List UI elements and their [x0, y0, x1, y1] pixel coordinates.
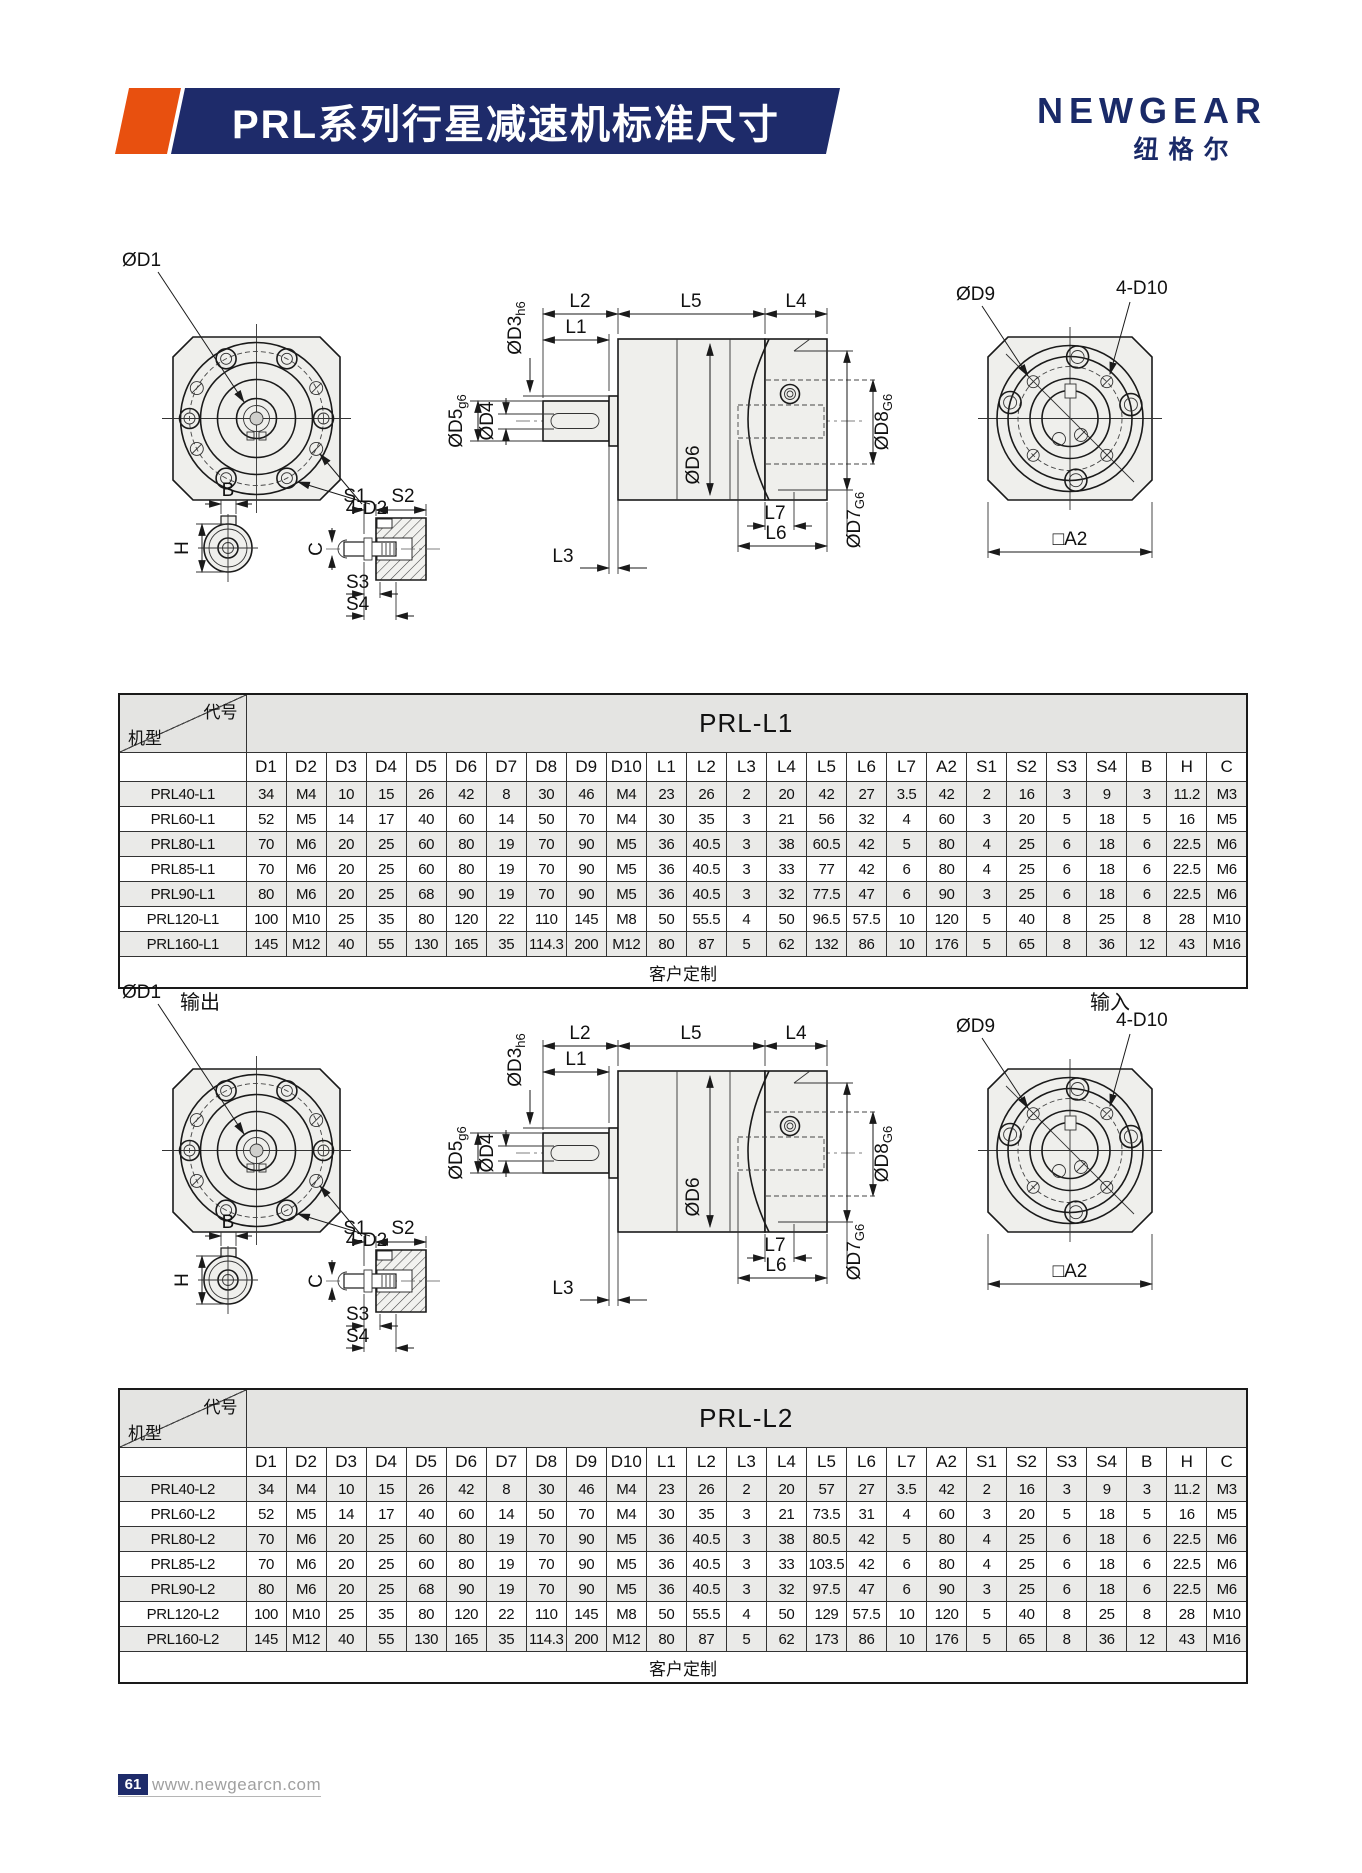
value-cell: 50 — [526, 1502, 566, 1527]
value-cell: 60 — [406, 1527, 446, 1552]
label-od6: ØD6 — [683, 445, 704, 484]
value-cell: 23 — [646, 782, 686, 807]
value-cell: 20 — [326, 832, 366, 857]
value-cell: 68 — [406, 882, 446, 907]
value-cell: 10 — [326, 1477, 366, 1502]
label-a2: □A2 — [1053, 1261, 1088, 1282]
output-flange-view: ØD1 4-D2 — [122, 250, 387, 519]
value-cell: 3 — [726, 1552, 766, 1577]
value-cell: 5 — [967, 932, 1007, 957]
value-cell: 6 — [1047, 1577, 1087, 1602]
value-cell: M6 — [286, 1577, 326, 1602]
value-cell: 25 — [366, 857, 406, 882]
value-cell: 60 — [446, 807, 486, 832]
value-cell: M5 — [606, 832, 646, 857]
value-cell: 6 — [1047, 1527, 1087, 1552]
value-cell: 40 — [406, 807, 446, 832]
value-cell: 46 — [566, 782, 606, 807]
value-cell: 14 — [326, 807, 366, 832]
value-cell: M6 — [1207, 1552, 1247, 1577]
value-cell: 28 — [1167, 907, 1207, 932]
value-cell: 3 — [726, 1527, 766, 1552]
value-cell: M6 — [286, 882, 326, 907]
value-cell: 5 — [887, 832, 927, 857]
label-b: B — [222, 1212, 235, 1233]
value-cell: 5 — [967, 907, 1007, 932]
value-cell: 3 — [1047, 1477, 1087, 1502]
value-cell: 35 — [686, 1502, 726, 1527]
page-title: PRL系列行星减速机标准尺寸 — [232, 92, 780, 150]
value-cell: 3 — [726, 857, 766, 882]
value-cell: 70 — [526, 1577, 566, 1602]
value-cell: 80 — [446, 832, 486, 857]
value-cell: 8 — [1047, 907, 1087, 932]
value-cell: 12 — [1127, 932, 1167, 957]
value-cell: 2 — [967, 782, 1007, 807]
value-cell: 16 — [1007, 782, 1047, 807]
label-od4: ØD4 — [477, 401, 498, 441]
value-cell: 25 — [1087, 1602, 1127, 1627]
series-title: PRL-L2 — [246, 1389, 1247, 1448]
table-corner-cell: 代号机型 — [119, 694, 246, 753]
model-name: PRL90-L2 — [119, 1577, 246, 1602]
value-cell: M6 — [286, 832, 326, 857]
column-header: L7 — [887, 753, 927, 782]
value-cell: M3 — [1207, 782, 1247, 807]
drawing-set-2: 输出 输入 — [118, 960, 1250, 1380]
value-cell: 6 — [1127, 1577, 1167, 1602]
value-cell: 80 — [446, 1552, 486, 1577]
value-cell: 25 — [1007, 832, 1047, 857]
value-cell: 40.5 — [686, 832, 726, 857]
value-cell: 60 — [406, 1552, 446, 1577]
value-cell: 40.5 — [686, 1527, 726, 1552]
value-cell: M12 — [606, 1627, 646, 1652]
value-cell: 17 — [366, 807, 406, 832]
value-cell: 22 — [486, 907, 526, 932]
value-cell: 43 — [1167, 1627, 1207, 1652]
value-cell: 120 — [927, 907, 967, 932]
column-header: S1 — [967, 1448, 1007, 1477]
value-cell: 3 — [726, 1577, 766, 1602]
label-b: B — [222, 480, 235, 501]
value-cell: 4 — [967, 832, 1007, 857]
value-cell: 90 — [566, 832, 606, 857]
table-row: PRL120-L2100M1025358012022110145M85055.5… — [119, 1602, 1247, 1627]
value-cell: 97.5 — [806, 1577, 846, 1602]
value-cell: M10 — [286, 907, 326, 932]
value-cell: 145 — [566, 1602, 606, 1627]
website-link[interactable]: www.newgearcn.com — [152, 1775, 321, 1795]
value-cell: 80 — [446, 1527, 486, 1552]
value-cell: 3 — [726, 832, 766, 857]
value-cell: 18 — [1087, 1502, 1127, 1527]
column-header: L2 — [686, 1448, 726, 1477]
model-name: PRL160-L2 — [119, 1627, 246, 1652]
value-cell: 6 — [1127, 1552, 1167, 1577]
column-header: L3 — [726, 1448, 766, 1477]
table-row: PRL85-L270M620256080197090M53640.5333103… — [119, 1552, 1247, 1577]
value-cell: 100 — [246, 907, 286, 932]
value-cell: 5 — [887, 1527, 927, 1552]
value-cell: 47 — [846, 882, 886, 907]
value-cell: M6 — [1207, 882, 1247, 907]
page-footer: 61 www.newgearcn.com — [118, 1774, 321, 1797]
value-cell: 80 — [927, 857, 967, 882]
value-cell: 40 — [326, 932, 366, 957]
title-banner: PRL系列行星减速机标准尺寸 — [171, 88, 840, 154]
value-cell: 55 — [366, 1627, 406, 1652]
value-cell: 35 — [686, 807, 726, 832]
value-cell: 30 — [526, 782, 566, 807]
value-cell: 3 — [967, 1502, 1007, 1527]
value-cell: 36 — [646, 1527, 686, 1552]
value-cell: 6 — [1127, 832, 1167, 857]
value-cell: 62 — [766, 1627, 806, 1652]
value-cell: 50 — [646, 907, 686, 932]
value-cell: 60 — [927, 807, 967, 832]
value-cell: 8 — [1047, 1602, 1087, 1627]
column-header: S3 — [1047, 753, 1087, 782]
value-cell: 70 — [246, 857, 286, 882]
value-cell: 80 — [927, 1552, 967, 1577]
label-l4: L4 — [785, 1023, 807, 1044]
value-cell: 18 — [1087, 1527, 1127, 1552]
label-c: C — [306, 542, 327, 556]
value-cell: 36 — [1087, 932, 1127, 957]
value-cell: 4 — [887, 807, 927, 832]
value-cell: 65 — [1007, 932, 1047, 957]
dimension-table-prl-l1: 代号机型PRL-L1D1D2D3D4D5D6D7D8D9D10L1L2L3L4L… — [118, 693, 1248, 989]
model-name: PRL40-L2 — [119, 1477, 246, 1502]
value-cell: 57.5 — [846, 907, 886, 932]
column-header: D7 — [486, 753, 526, 782]
value-cell: 165 — [446, 1627, 486, 1652]
column-header: S4 — [1087, 1448, 1127, 1477]
drawing-set-1: ØD1 4-D2 B H — [118, 228, 1250, 648]
value-cell: 103.5 — [806, 1552, 846, 1577]
value-cell: 90 — [927, 882, 967, 907]
value-cell: 38 — [766, 832, 806, 857]
value-cell: M10 — [1207, 1602, 1247, 1627]
label-l7: L7 — [764, 1235, 785, 1256]
value-cell: 25 — [1007, 882, 1047, 907]
value-cell: 10 — [326, 782, 366, 807]
value-cell: M4 — [606, 1502, 646, 1527]
value-cell: 114.3 — [526, 932, 566, 957]
value-cell: 6 — [1047, 1552, 1087, 1577]
value-cell: 20 — [766, 782, 806, 807]
value-cell: 40 — [1007, 1602, 1047, 1627]
value-cell: 34 — [246, 1477, 286, 1502]
value-cell: 5 — [726, 1627, 766, 1652]
value-cell: 77 — [806, 857, 846, 882]
value-cell: 86 — [846, 932, 886, 957]
label-l1: L1 — [565, 317, 586, 338]
value-cell: 60.5 — [806, 832, 846, 857]
value-cell: 22.5 — [1167, 1527, 1207, 1552]
value-cell: 25 — [366, 832, 406, 857]
label-l6: L6 — [765, 523, 786, 544]
value-cell: 90 — [566, 857, 606, 882]
value-cell: 130 — [406, 1627, 446, 1652]
value-cell: 6 — [887, 1577, 927, 1602]
column-header: D9 — [566, 753, 606, 782]
value-cell: 10 — [887, 1627, 927, 1652]
value-cell: 20 — [326, 1527, 366, 1552]
label-od3: ØD3h6 — [505, 1033, 528, 1087]
value-cell: 25 — [366, 1577, 406, 1602]
value-cell: M12 — [286, 1627, 326, 1652]
column-header: D3 — [326, 753, 366, 782]
value-cell: 18 — [1087, 832, 1127, 857]
label-a2: □A2 — [1053, 529, 1088, 550]
label-od5: ØD5g6 — [446, 394, 469, 448]
value-cell: M12 — [606, 932, 646, 957]
value-cell: 200 — [566, 1627, 606, 1652]
value-cell: 52 — [246, 1502, 286, 1527]
value-cell: 35 — [486, 1627, 526, 1652]
value-cell: M4 — [606, 782, 646, 807]
value-cell: 6 — [1047, 882, 1087, 907]
value-cell: M4 — [606, 1477, 646, 1502]
side-view: L2 L5 L4 L1 ØD3h6 ØD5g6 ØD4 ØD6 — [446, 291, 895, 574]
value-cell: 22 — [486, 1602, 526, 1627]
value-cell: 25 — [1087, 907, 1127, 932]
value-cell: 22.5 — [1167, 857, 1207, 882]
value-cell: 30 — [646, 1502, 686, 1527]
label-od4: ØD4 — [477, 1133, 498, 1173]
value-cell: 40.5 — [686, 857, 726, 882]
value-cell: 5 — [726, 932, 766, 957]
column-header: D6 — [446, 753, 486, 782]
value-cell: 14 — [486, 1502, 526, 1527]
value-cell: 60 — [406, 832, 446, 857]
column-header: D4 — [366, 753, 406, 782]
column-header: A2 — [927, 1448, 967, 1477]
dimension-table: 代号机型PRL-L2D1D2D3D4D5D6D7D8D9D10L1L2L3L4L… — [118, 1388, 1248, 1684]
value-cell: 25 — [326, 907, 366, 932]
value-cell: 6 — [887, 857, 927, 882]
value-cell: 36 — [1087, 1627, 1127, 1652]
value-cell: 3.5 — [887, 1477, 927, 1502]
value-cell: 26 — [406, 782, 446, 807]
value-cell: 8 — [1047, 1627, 1087, 1652]
model-name: PRL90-L1 — [119, 882, 246, 907]
input-flange-view: ØD9 4-D10 □A2 — [956, 278, 1168, 558]
value-cell: 43 — [1167, 932, 1207, 957]
value-cell: 70 — [246, 1552, 286, 1577]
value-cell: 70 — [526, 882, 566, 907]
value-cell: 5 — [1127, 1502, 1167, 1527]
value-cell: 30 — [526, 1477, 566, 1502]
corner-label-top: 代号 — [204, 1393, 238, 1418]
value-cell: 120 — [446, 907, 486, 932]
value-cell: 27 — [846, 782, 886, 807]
value-cell: 86 — [846, 1627, 886, 1652]
label-l5: L5 — [680, 291, 701, 312]
value-cell: 80 — [646, 1627, 686, 1652]
label-s4: S4 — [346, 1326, 370, 1347]
value-cell: 20 — [1007, 807, 1047, 832]
value-cell: 21 — [766, 1502, 806, 1527]
value-cell: 3 — [1127, 782, 1167, 807]
value-cell: 2 — [726, 782, 766, 807]
value-cell: 6 — [1127, 1527, 1167, 1552]
value-cell: 40 — [1007, 907, 1047, 932]
column-header: D10 — [606, 753, 646, 782]
column-header: D5 — [406, 1448, 446, 1477]
value-cell: 90 — [566, 1527, 606, 1552]
column-header: D5 — [406, 753, 446, 782]
label-od5: ØD5g6 — [446, 1126, 469, 1180]
value-cell: 96.5 — [806, 907, 846, 932]
value-cell: 87 — [686, 932, 726, 957]
value-cell: 8 — [1127, 1602, 1167, 1627]
column-header: L1 — [646, 753, 686, 782]
value-cell: 80 — [446, 857, 486, 882]
value-cell: 176 — [927, 932, 967, 957]
label-od9: ØD9 — [956, 1016, 995, 1037]
value-cell: M6 — [1207, 857, 1247, 882]
table-footer-note: 客户定制 — [119, 1652, 1247, 1684]
value-cell: 56 — [806, 807, 846, 832]
value-cell: M5 — [606, 1552, 646, 1577]
column-header: L1 — [646, 1448, 686, 1477]
value-cell: 20 — [326, 1577, 366, 1602]
input-flange-view: ØD9 4-D10 □A2 — [956, 1010, 1168, 1290]
value-cell: 110 — [526, 1602, 566, 1627]
value-cell: 10 — [887, 1602, 927, 1627]
label-l4: L4 — [785, 291, 807, 312]
value-cell: 90 — [566, 882, 606, 907]
value-cell: 18 — [1087, 807, 1127, 832]
value-cell: 40.5 — [686, 1552, 726, 1577]
value-cell: M5 — [1207, 1502, 1247, 1527]
value-cell: 18 — [1087, 1552, 1127, 1577]
value-cell: 38 — [766, 1527, 806, 1552]
output-side-label: 输出 — [180, 986, 220, 1015]
value-cell: 19 — [486, 882, 526, 907]
value-cell: 17 — [366, 1502, 406, 1527]
value-cell: 40 — [406, 1502, 446, 1527]
value-cell: 35 — [366, 907, 406, 932]
value-cell: 80 — [406, 1602, 446, 1627]
value-cell: 15 — [366, 1477, 406, 1502]
value-cell: 36 — [646, 882, 686, 907]
label-s4: S4 — [346, 594, 370, 615]
value-cell: 80 — [927, 832, 967, 857]
value-cell: 90 — [927, 1577, 967, 1602]
value-cell: 80 — [246, 1577, 286, 1602]
label-h: H — [172, 1273, 193, 1287]
label-od8: ØD8G6 — [872, 1126, 895, 1182]
value-cell: 20 — [766, 1477, 806, 1502]
value-cell: 176 — [927, 1627, 967, 1652]
value-cell: 26 — [686, 782, 726, 807]
dimension-table-prl-l2: 代号机型PRL-L2D1D2D3D4D5D6D7D8D9D10L1L2L3L4L… — [118, 1388, 1248, 1684]
value-cell: 4 — [887, 1502, 927, 1527]
value-cell: 114.3 — [526, 1627, 566, 1652]
value-cell: 42 — [846, 1527, 886, 1552]
column-header-empty — [119, 753, 246, 782]
model-name: PRL80-L1 — [119, 832, 246, 857]
value-cell: 60 — [927, 1502, 967, 1527]
value-cell: 40.5 — [686, 882, 726, 907]
value-cell: 6 — [1047, 832, 1087, 857]
value-cell: 145 — [246, 932, 286, 957]
value-cell: 90 — [566, 1552, 606, 1577]
value-cell: 3 — [1127, 1477, 1167, 1502]
value-cell: 42 — [806, 782, 846, 807]
column-header: D8 — [526, 753, 566, 782]
column-header: L6 — [846, 1448, 886, 1477]
value-cell: 42 — [846, 857, 886, 882]
value-cell: 68 — [406, 1577, 446, 1602]
value-cell: 80.5 — [806, 1527, 846, 1552]
value-cell: 6 — [1127, 882, 1167, 907]
gearbox-drawing: ØD1 4-D2 B H — [118, 960, 1250, 1380]
label-l7: L7 — [764, 503, 785, 524]
value-cell: M6 — [1207, 1527, 1247, 1552]
value-cell: 100 — [246, 1602, 286, 1627]
header-accent-stripe — [115, 88, 181, 154]
model-name: PRL40-L1 — [119, 782, 246, 807]
model-name: PRL160-L1 — [119, 932, 246, 957]
value-cell: 19 — [486, 1552, 526, 1577]
value-cell: 110 — [526, 907, 566, 932]
value-cell: 3 — [726, 882, 766, 907]
value-cell: M5 — [1207, 807, 1247, 832]
value-cell: 20 — [326, 882, 366, 907]
value-cell: 57.5 — [846, 1602, 886, 1627]
value-cell: 25 — [326, 1602, 366, 1627]
label-l2: L2 — [569, 291, 590, 312]
value-cell: 40 — [326, 1627, 366, 1652]
value-cell: 9 — [1087, 1477, 1127, 1502]
table-row: PRL85-L170M620256080197090M53640.5333774… — [119, 857, 1247, 882]
value-cell: 19 — [486, 857, 526, 882]
value-cell: 4 — [967, 1552, 1007, 1577]
value-cell: 80 — [646, 932, 686, 957]
value-cell: 55.5 — [686, 907, 726, 932]
value-cell: 19 — [486, 1527, 526, 1552]
value-cell: 18 — [1087, 882, 1127, 907]
value-cell: 33 — [766, 857, 806, 882]
value-cell: M10 — [286, 1602, 326, 1627]
value-cell: 34 — [246, 782, 286, 807]
value-cell: 42 — [846, 832, 886, 857]
page-number: 61 — [118, 1774, 148, 1795]
value-cell: 3.5 — [887, 782, 927, 807]
value-cell: 70 — [566, 807, 606, 832]
value-cell: 70 — [526, 857, 566, 882]
value-cell: M8 — [606, 907, 646, 932]
value-cell: 3 — [726, 1502, 766, 1527]
corner-label-top: 代号 — [204, 698, 238, 723]
value-cell: 9 — [1087, 782, 1127, 807]
value-cell: 6 — [1127, 857, 1167, 882]
value-cell: 132 — [806, 932, 846, 957]
value-cell: 36 — [646, 1552, 686, 1577]
value-cell: 50 — [766, 907, 806, 932]
value-cell: 42 — [846, 1552, 886, 1577]
value-cell: 30 — [646, 807, 686, 832]
value-cell: M4 — [286, 782, 326, 807]
value-cell: 32 — [766, 1577, 806, 1602]
value-cell: M6 — [286, 857, 326, 882]
value-cell: M6 — [1207, 1577, 1247, 1602]
